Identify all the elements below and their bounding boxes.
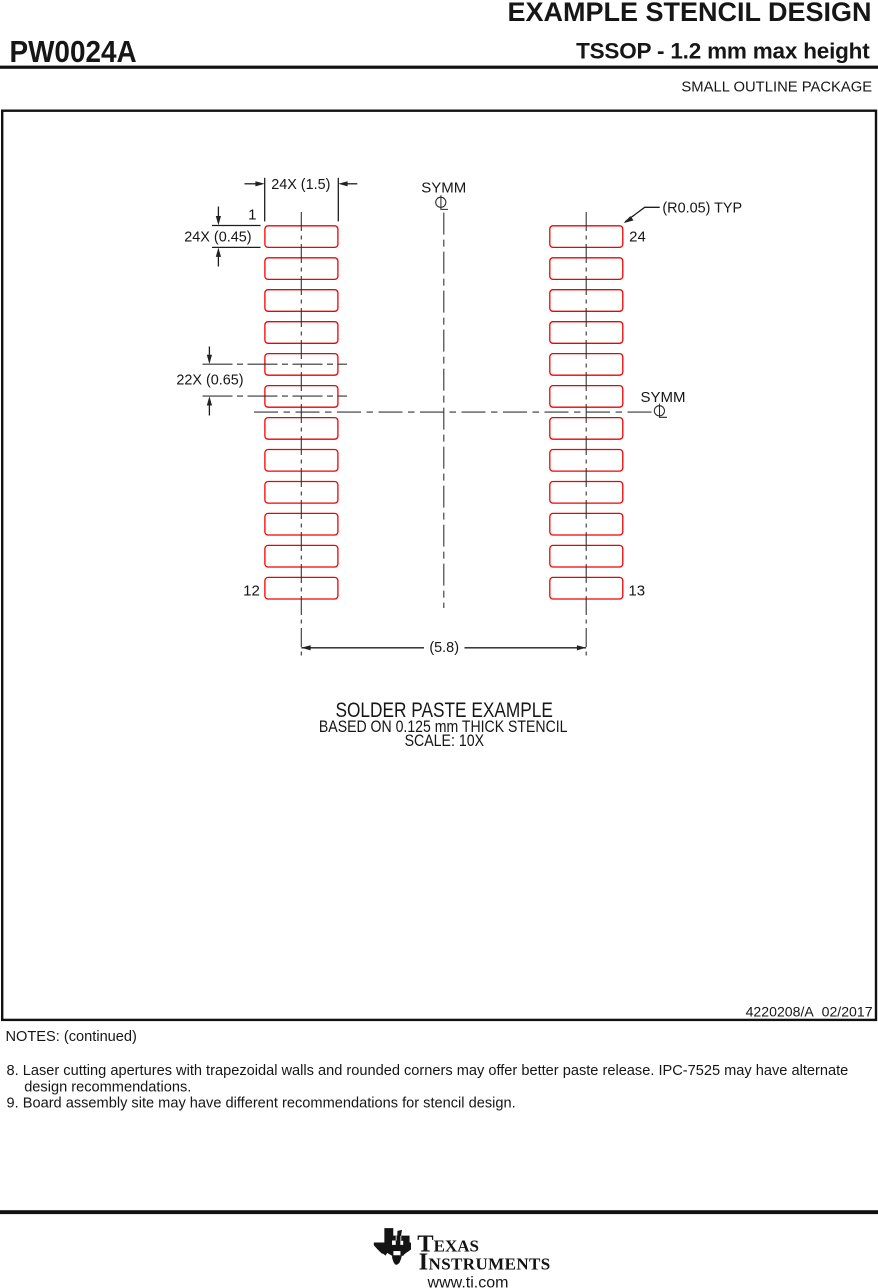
svg-text:1: 1 — [248, 207, 256, 224]
svg-text:4220208/A 02/2017: 4220208/A 02/2017 — [746, 1003, 873, 1019]
svg-text:SYMM: SYMM — [421, 179, 466, 196]
svg-text:EXAMPLE STENCIL DESIGN: EXAMPLE STENCIL DESIGN — [507, 0, 871, 27]
svg-text:SMALL OUTLINE PACKAGE: SMALL OUTLINE PACKAGE — [681, 80, 872, 96]
svg-text:(R0.05) TYP: (R0.05) TYP — [662, 201, 742, 217]
svg-text:13: 13 — [628, 582, 645, 599]
svg-text:12: 12 — [243, 582, 260, 599]
svg-text:NOTES: (continued): NOTES: (continued) — [6, 1029, 137, 1045]
svg-text:design recommendations.: design recommendations. — [24, 1080, 191, 1096]
svg-text:24X (1.5): 24X (1.5) — [271, 177, 330, 193]
svg-text:TSSOP - 1.2 mm max height: TSSOP - 1.2 mm max height — [576, 39, 870, 64]
svg-text:www.ti.com: www.ti.com — [427, 1274, 509, 1288]
svg-text:9. Board assembly site may hav: 9. Board assembly site may have differen… — [7, 1096, 516, 1112]
svg-text:8. Laser cutting apertures wit: 8. Laser cutting apertures with trapezoi… — [7, 1063, 849, 1079]
svg-text:24: 24 — [629, 228, 646, 245]
svg-text:SYMM: SYMM — [641, 389, 686, 406]
svg-text:(5.8): (5.8) — [429, 640, 459, 656]
svg-text:PW0024A: PW0024A — [10, 35, 137, 70]
svg-text:Instruments: Instruments — [419, 1249, 551, 1276]
svg-text:22X (0.65): 22X (0.65) — [176, 372, 243, 388]
svg-text:SCALE: 10X: SCALE: 10X — [405, 732, 484, 750]
svg-text:24X (0.45): 24X (0.45) — [184, 230, 251, 246]
